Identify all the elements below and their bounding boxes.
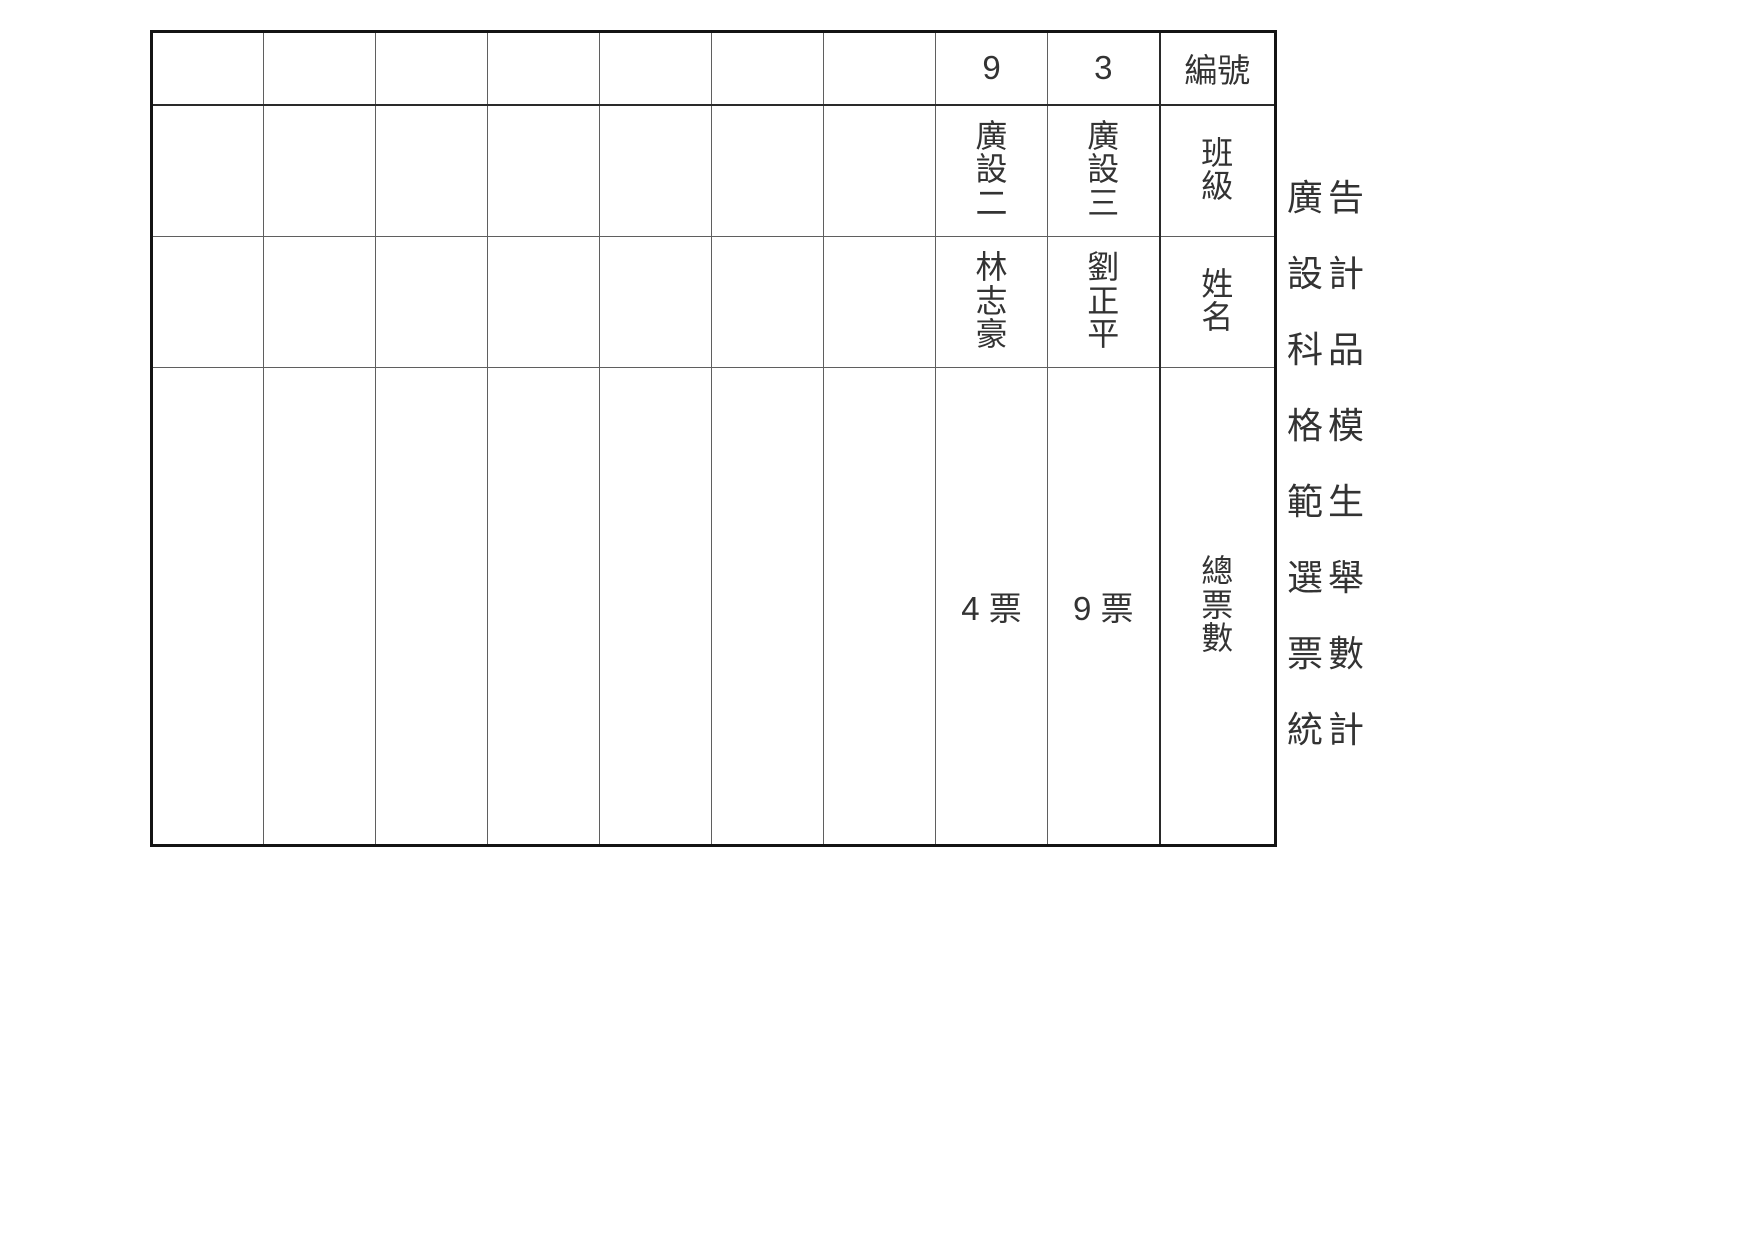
empty-cell: [264, 105, 376, 237]
empty-cell: [600, 368, 712, 846]
header-total-votes-label: 總票數: [1198, 555, 1236, 655]
empty-cell: [712, 237, 824, 368]
empty-cell: [824, 32, 936, 105]
empty-cell: [712, 368, 824, 846]
header-class-cell: 班級: [1160, 105, 1276, 237]
empty-cell: [488, 237, 600, 368]
empty-cell: [152, 237, 264, 368]
document-page: 9 3 編號 廣設二 廣設三 班級: [0, 0, 1755, 1240]
sheet-title: 廣告設計科品格模範生選舉票數統計: [1287, 160, 1375, 768]
candidate1-id-cell: 3: [1048, 32, 1160, 105]
candidate2-votes: 4 票: [961, 582, 1022, 630]
candidate1-votes-cell: 9 票: [1048, 368, 1160, 846]
candidate1-class: 廣設三: [1084, 120, 1122, 220]
candidate2-id: 9: [982, 49, 1000, 87]
id-row: 9 3 編號: [152, 32, 1276, 105]
empty-cell: [712, 105, 824, 237]
empty-cell: [600, 32, 712, 105]
header-name-label: 姓名: [1198, 268, 1236, 335]
empty-cell: [264, 32, 376, 105]
empty-cell: [600, 237, 712, 368]
empty-cell: [376, 105, 488, 237]
candidate2-class: 廣設二: [973, 120, 1011, 220]
class-row: 廣設二 廣設三 班級: [152, 105, 1276, 237]
empty-cell: [824, 237, 936, 368]
vote-tally-table: 9 3 編號 廣設二 廣設三 班級: [150, 30, 1277, 847]
empty-cell: [376, 368, 488, 846]
empty-cell: [264, 368, 376, 846]
candidate2-name: 林志豪: [973, 251, 1011, 351]
empty-cell: [376, 32, 488, 105]
empty-cell: [152, 368, 264, 846]
empty-cell: [600, 105, 712, 237]
empty-cell: [712, 32, 824, 105]
empty-cell: [376, 237, 488, 368]
header-id-label: 編號: [1184, 44, 1250, 92]
candidate1-name-cell: 劉正平: [1048, 237, 1160, 368]
candidate1-votes: 9 票: [1073, 582, 1134, 630]
candidate1-name: 劉正平: [1084, 251, 1122, 351]
candidate2-name-cell: 林志豪: [936, 237, 1048, 368]
candidate2-class-cell: 廣設二: [936, 105, 1048, 237]
candidate1-id: 3: [1094, 49, 1112, 87]
header-id-cell: 編號: [1160, 32, 1276, 105]
total-votes-row: 4 票 9 票 總票數: [152, 368, 1276, 846]
empty-cell: [824, 368, 936, 846]
candidate2-id-cell: 9: [936, 32, 1048, 105]
candidate1-class-cell: 廣設三: [1048, 105, 1160, 237]
header-name-cell: 姓名: [1160, 237, 1276, 368]
empty-cell: [152, 105, 264, 237]
empty-cell: [488, 32, 600, 105]
header-class-label: 班級: [1198, 137, 1236, 204]
candidate2-votes-cell: 4 票: [936, 368, 1048, 846]
empty-cell: [824, 105, 936, 237]
header-total-votes-cell: 總票數: [1160, 368, 1276, 846]
name-row: 林志豪 劉正平 姓名: [152, 237, 1276, 368]
empty-cell: [488, 368, 600, 846]
empty-cell: [264, 237, 376, 368]
empty-cell: [152, 32, 264, 105]
empty-cell: [488, 105, 600, 237]
